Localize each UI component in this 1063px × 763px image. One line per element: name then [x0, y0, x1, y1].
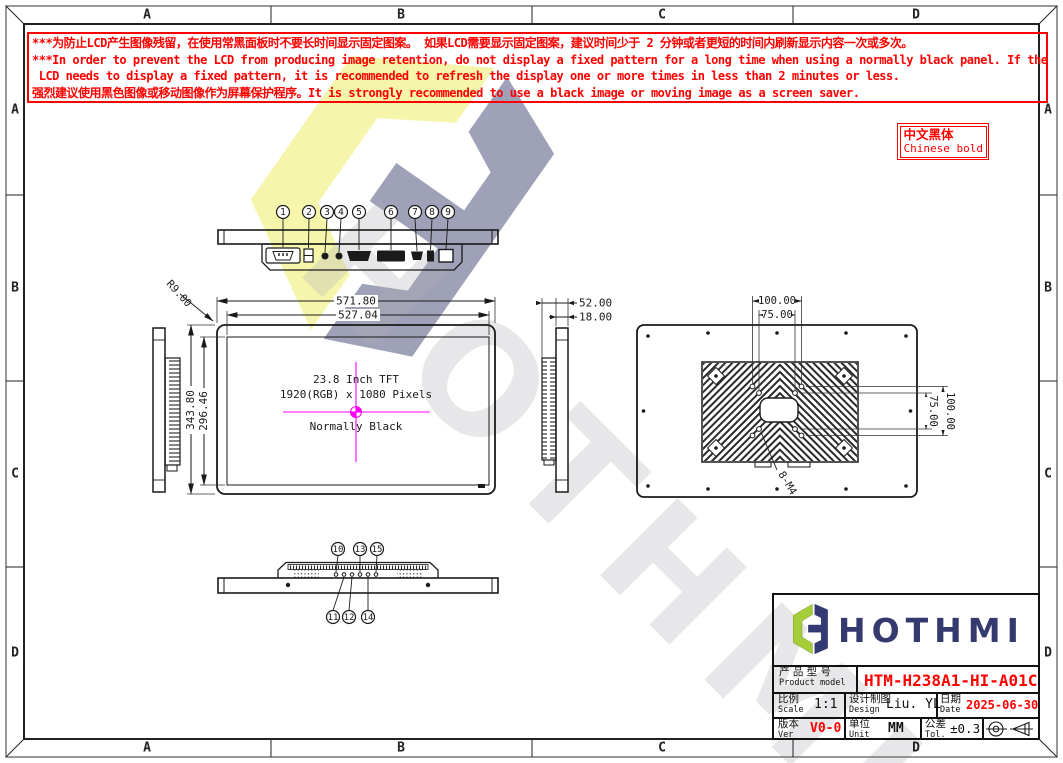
- font-note-inner: 中文黑体 Chinese bold: [900, 126, 987, 158]
- grid-col-d-bottom: D: [912, 741, 920, 756]
- callout-number: 15: [372, 545, 383, 555]
- panel-spec-line3: Normally Black: [310, 420, 403, 433]
- design-label: 设计制图 Design: [849, 694, 891, 715]
- side-view-drawing: 52.00 18.00: [535, 280, 630, 500]
- title-block: HOTHMI 产 品 型 号 Product model HTM-H238A1-…: [772, 593, 1040, 740]
- bottom-view-callouts: 10 13 15 11 12 14: [327, 543, 384, 624]
- back-center-cutout: [760, 398, 798, 422]
- panel-spec-line2: 1920(RGB) x 1080 Pixels: [280, 388, 432, 401]
- bottom-view-drawing: 10 13 15 11 12 14: [205, 535, 515, 635]
- callout-number: 13: [355, 545, 366, 555]
- top-view-callouts: 1 2 3 4 5 6 7 8 9: [277, 206, 455, 219]
- osd-buttons: [334, 573, 378, 577]
- dim-active-width: 527.04: [338, 309, 378, 322]
- dim-vesa-right-75: 75.00: [927, 395, 939, 427]
- design-value: Liu. YL: [886, 697, 941, 712]
- dim-outer-width: 571.80: [336, 295, 376, 308]
- grid-row-b-right: B: [1044, 281, 1052, 296]
- scale-label: 比例 Scale: [778, 694, 804, 715]
- dim-thickness: 18.00: [579, 311, 612, 324]
- callout-number: 9: [445, 207, 451, 218]
- dvi-connector: [377, 251, 405, 262]
- speaker-grille-left: [293, 571, 319, 578]
- version-value: V0-0: [810, 721, 841, 736]
- vent-strip: [288, 565, 428, 570]
- grid-col-c-bottom: C: [658, 741, 666, 756]
- product-model-value: HTM-H238A1-HI-A01C: [864, 671, 1037, 690]
- grid-col-b-top: B: [397, 8, 405, 23]
- callout-number: 6: [388, 207, 394, 218]
- unit-value: MM: [888, 721, 904, 736]
- dim-vesa-right-100: 100.00: [944, 392, 956, 430]
- version-label: 版本 Ver: [778, 719, 799, 740]
- left-side-view-drawing: [140, 315, 190, 500]
- grid-row-d-left: D: [11, 646, 19, 661]
- back-view-drawing: 100.00 75.00 75.00 100.00 8-M4: [630, 280, 975, 515]
- dim-vesa-top-100: 100.00: [758, 295, 796, 307]
- brand-name: HOTHMI: [838, 611, 1025, 650]
- scale-value: 1:1: [814, 697, 837, 712]
- grid-col-a-top: A: [143, 8, 151, 23]
- grid-row-b-left: B: [11, 281, 19, 296]
- warning-note: ***为防止LCD产生图像残留，在使用常黑面板时不要长时间显示固定图案。 如果L…: [27, 32, 1048, 103]
- callout-number: 12: [344, 613, 355, 623]
- dim-corner-radius: R9.00: [164, 278, 194, 310]
- grid-col-a-bottom: A: [143, 741, 151, 756]
- callout-number: 11: [328, 613, 339, 623]
- square-connector: [439, 250, 453, 263]
- callout-number: 14: [363, 613, 374, 623]
- tolerance-value: ±0.3: [950, 721, 980, 736]
- grid-col-c-top: C: [658, 8, 666, 23]
- warning-line-2: ***In order to prevent the LCD from prod…: [32, 52, 1043, 69]
- font-note-cn: 中文黑体: [904, 127, 983, 142]
- dim-vesa-top-75: 75.00: [761, 309, 793, 321]
- hothmi-logo-icon: [786, 601, 834, 657]
- callout-number: 10: [333, 545, 344, 555]
- top-view-drawing: 1 2 3 4 5 6 7 8 9: [200, 195, 520, 280]
- hdmi-connector: [411, 252, 423, 261]
- callout-number: 3: [324, 207, 330, 218]
- callout-number: 8: [429, 207, 435, 218]
- tolerance-label: 公差 Tol.: [925, 719, 946, 740]
- product-model-label: 产 品 型 号 Product model: [779, 667, 846, 688]
- mount-holes-label: 8-M4: [775, 469, 799, 497]
- grid-row-a-right: A: [1044, 103, 1052, 118]
- dim-depth: 52.00: [579, 297, 612, 310]
- grid-col-b-bottom: B: [397, 741, 405, 756]
- callout-number: 2: [306, 207, 312, 218]
- audio-jack-1: [322, 253, 329, 260]
- date-label: 日期 Date: [940, 694, 961, 715]
- grid-row-d-right: D: [1044, 646, 1052, 661]
- unit-label: 单位 Unit: [849, 719, 870, 740]
- warning-line-1: ***为防止LCD产生图像残留，在使用常黑面板时不要长时间显示固定图案。 如果L…: [32, 35, 1043, 52]
- font-note-box: 中文黑体 Chinese bold: [897, 123, 989, 160]
- warning-line-4: 强烈建议使用黑色图像或移动图像作为屏幕保护程序。It is strongly r…: [32, 85, 1043, 102]
- warning-line-3: LCD needs to display a fixed pattern, it…: [32, 68, 1043, 85]
- callout-number: 5: [356, 207, 362, 218]
- callout-number: 1: [280, 207, 286, 218]
- grid-col-d-top: D: [912, 8, 920, 23]
- font-note-en: Chinese bold: [904, 142, 983, 155]
- speaker-grille-right: [397, 571, 423, 578]
- panel-spec-line1: 23.8 Inch TFT: [313, 373, 399, 386]
- audio-jack-2: [336, 253, 343, 260]
- callout-number: 7: [412, 207, 418, 218]
- vga-connector: [347, 251, 371, 261]
- third-angle-projection-icon: [985, 719, 1037, 739]
- grid-row-c-right: C: [1044, 467, 1052, 482]
- date-value: 2025-06-30: [966, 698, 1038, 712]
- callout-number: 4: [338, 207, 344, 218]
- front-view-drawing: 571.80 527.04 343.80 296.46 R9.00 23.8 I…: [150, 270, 510, 510]
- drawing-sheet: HOTHMI A B C D A B C D A B C D A B C D *…: [0, 0, 1063, 763]
- grid-row-c-left: C: [11, 467, 19, 482]
- dim-active-height: 296.46: [197, 391, 210, 431]
- grid-row-a-left: A: [11, 103, 19, 118]
- usb-connector: [427, 251, 434, 262]
